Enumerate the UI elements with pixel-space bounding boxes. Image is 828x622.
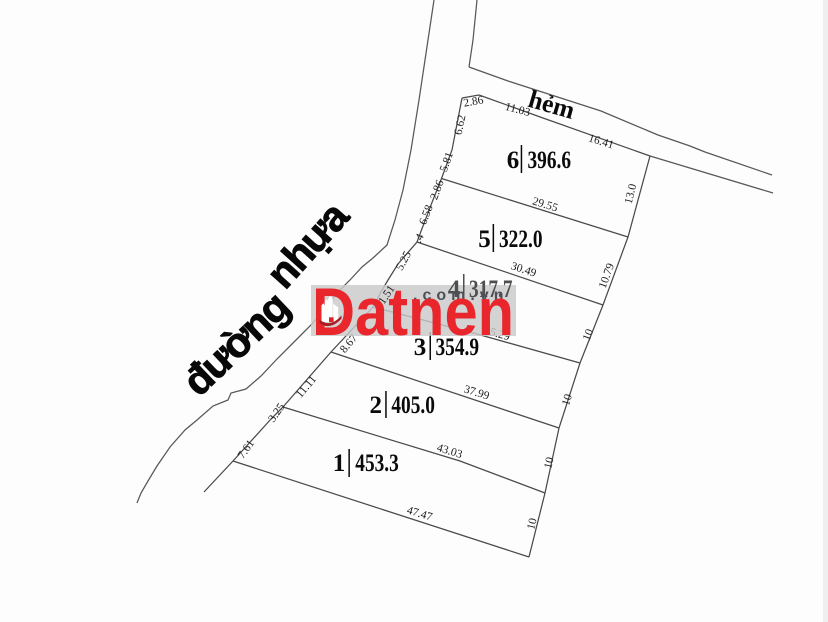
svg-text:1: 1 — [333, 450, 346, 477]
svg-text:405.0: 405.0 — [391, 392, 435, 419]
svg-text:5: 5 — [478, 226, 491, 253]
svg-text:322.0: 322.0 — [499, 226, 543, 253]
svg-text:453.3: 453.3 — [355, 450, 399, 477]
svg-text:6: 6 — [507, 147, 520, 174]
svg-text:2: 2 — [369, 392, 382, 419]
svg-text:396.6: 396.6 — [528, 147, 572, 174]
svg-text:Datnen: Datnen — [312, 274, 514, 350]
